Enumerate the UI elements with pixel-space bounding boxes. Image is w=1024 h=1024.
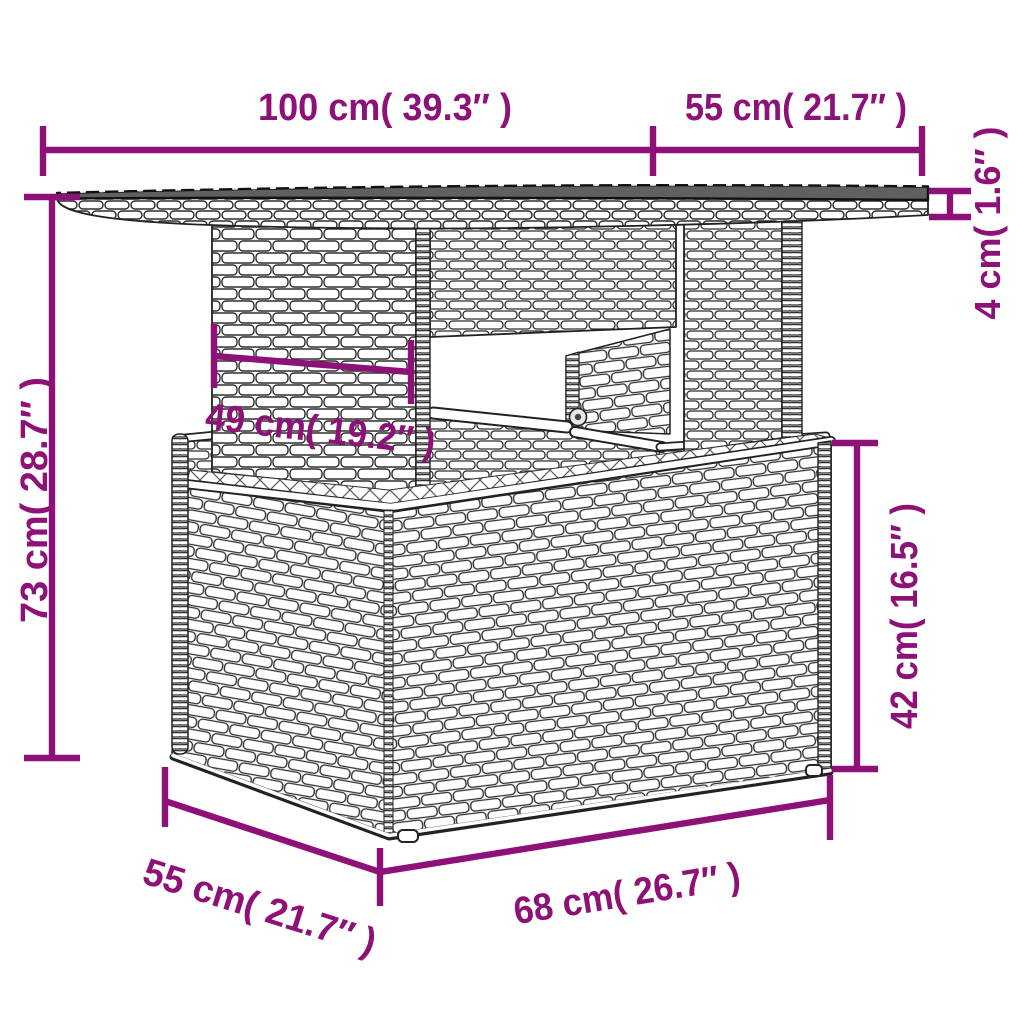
svg-text:55 cm( 21.7″ ): 55 cm( 21.7″ ) — [685, 87, 907, 129]
svg-text:42 cm( 16.5″ ): 42 cm( 16.5″ ) — [884, 503, 926, 729]
svg-text:4 cm( 1.6″ ): 4 cm( 1.6″ ) — [967, 127, 1008, 320]
svg-text:73 cm( 28.7″ ): 73 cm( 28.7″ ) — [14, 377, 56, 623]
svg-text:100 cm( 39.3″ ): 100 cm( 39.3″ ) — [258, 87, 512, 129]
